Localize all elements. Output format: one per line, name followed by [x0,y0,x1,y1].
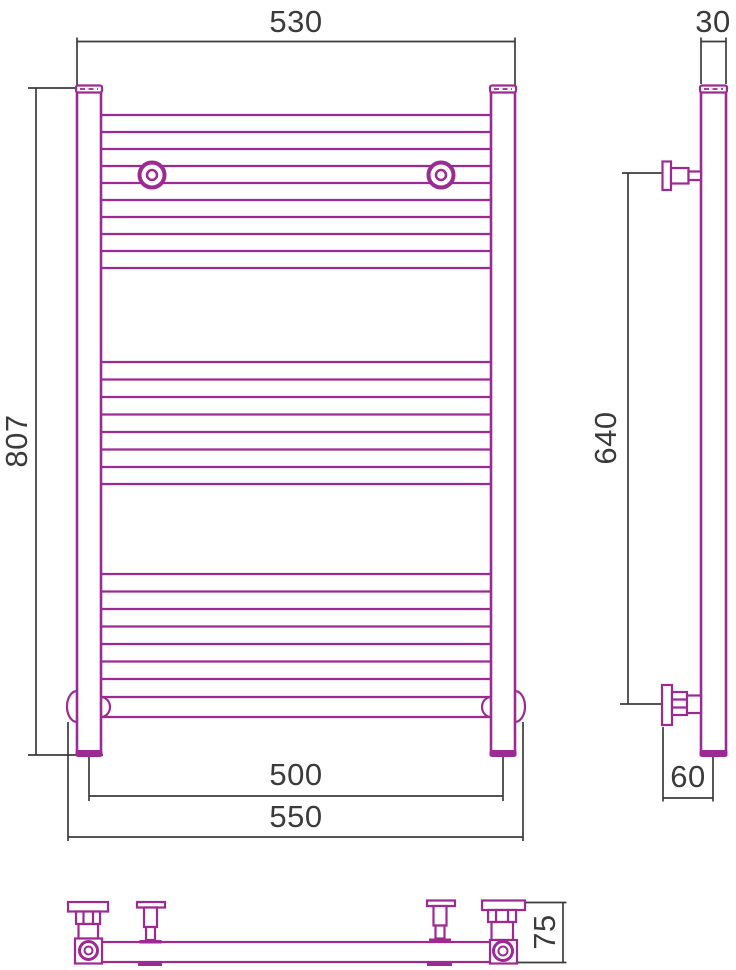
dim-530-lines [77,38,515,89]
dim-30-lines [701,38,726,85]
side-top-bracket [663,162,702,191]
dim-depth-label: 75 [527,872,563,970]
dim-wall-to-axis-label: 60 [628,759,736,795]
towel-rail-technical-drawing: 530 30 807 640 500 550 60 75 [0,0,736,970]
front-bottom-collector [67,691,525,722]
dim-bracket-span-label: 640 [588,378,624,498]
front-right-post [490,86,517,758]
front-rungs [101,115,491,679]
dim-post-diameter-label: 30 [653,4,736,40]
wall-bracket-rosette-right [429,163,454,188]
dim-overall-width-label: 530 [236,4,356,40]
dim-overall-height-label: 807 [0,381,35,501]
dim-640-lines [620,173,664,704]
dim-bottom-rail-width-label: 550 [236,799,356,835]
plan-left-valve [68,902,108,964]
drawing-canvas [0,0,736,970]
side-bottom-bracket [662,685,701,725]
front-view [67,86,525,758]
top-view [68,901,525,967]
side-post [700,86,728,758]
front-bottom-collector-caps [101,697,491,717]
plan-right-bracket-stem [427,901,455,943]
dim-connection-spacing-label: 500 [236,757,356,793]
plan-left-bracket-stem [137,902,165,944]
front-left-post [76,86,103,758]
plan-bar [101,942,491,966]
side-view [662,86,728,758]
wall-bracket-rosette-left [140,163,165,188]
dimension-lines [28,38,726,963]
